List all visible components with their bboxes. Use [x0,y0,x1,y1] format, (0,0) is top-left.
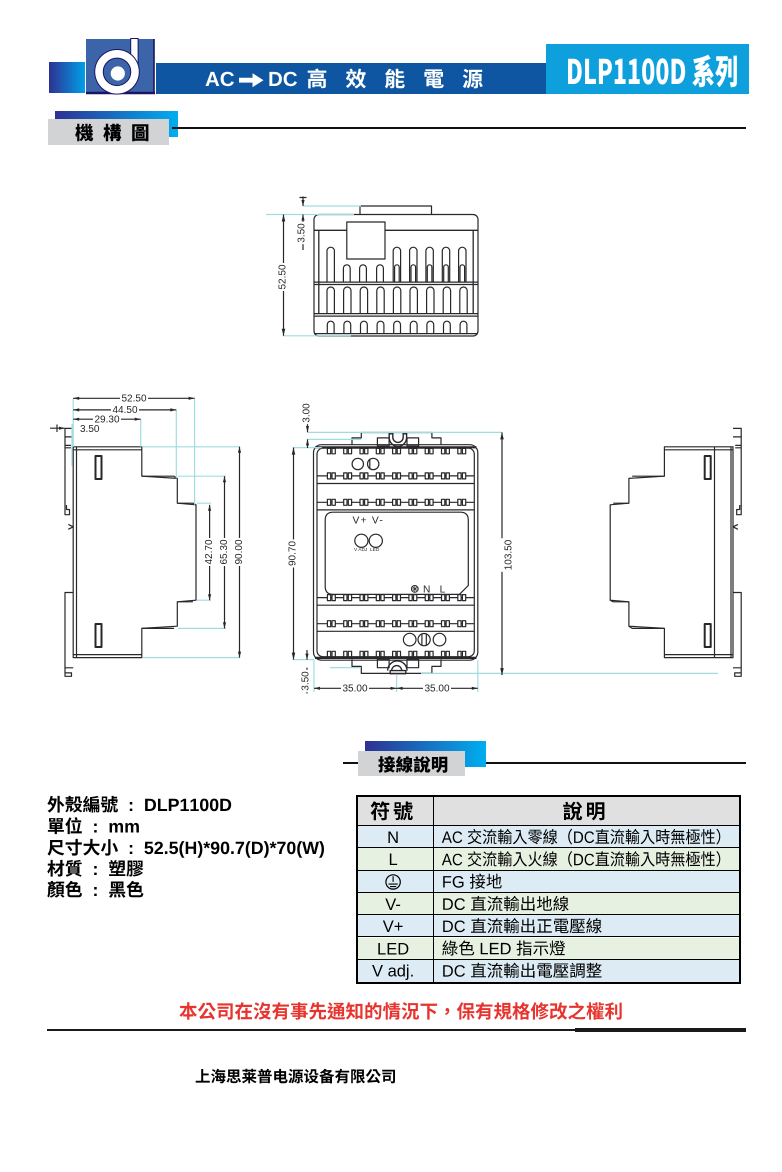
svg-text:52.50: 52.50 [278,264,289,289]
svg-text:3.00: 3.00 [302,403,313,423]
svg-text:V+ V-: V+ V- [353,515,384,526]
svg-text:3.50: 3.50 [80,424,100,435]
svg-text:V-: V- [385,896,401,914]
svg-text:L: L [389,851,398,869]
svg-text:N L: N L [423,585,448,596]
svg-text:3.50: 3.50 [301,671,312,691]
svg-text:LED: LED [370,547,380,553]
svg-text:LED: LED [377,940,409,958]
svg-text:V+: V+ [383,918,404,936]
svg-text:52.50: 52.50 [121,394,146,405]
svg-text:35.00: 35.00 [342,684,367,695]
svg-text:V adj.: V adj. [372,963,414,981]
svg-text:N: N [387,829,399,847]
svg-text:3.50: 3.50 [297,223,308,243]
svg-text:90.70: 90.70 [287,541,298,566]
svg-text:V ADJ: V ADJ [354,547,368,553]
svg-text:65.30: 65.30 [219,539,230,564]
svg-text:35.00: 35.00 [424,684,449,695]
svg-text:90.00: 90.00 [234,539,245,564]
svg-text:42.70: 42.70 [204,539,215,564]
svg-text:103.50: 103.50 [504,539,515,570]
